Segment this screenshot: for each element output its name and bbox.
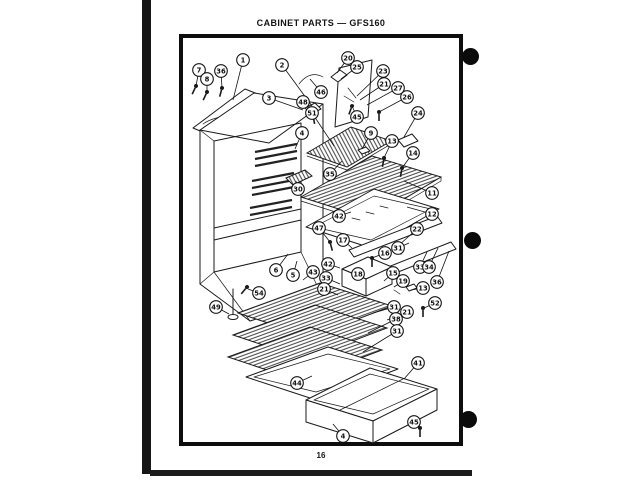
svg-text:35: 35 xyxy=(325,170,335,178)
callout-33: 33 xyxy=(320,272,333,285)
svg-text:54: 54 xyxy=(254,289,264,297)
svg-text:21: 21 xyxy=(379,80,389,88)
svg-text:4: 4 xyxy=(341,432,346,440)
svg-text:18: 18 xyxy=(353,270,363,278)
svg-text:8: 8 xyxy=(205,75,210,83)
svg-text:5: 5 xyxy=(291,271,296,279)
callout-26: 26 xyxy=(401,91,414,104)
callout-48: 48 xyxy=(297,96,310,109)
callout-4: 4 xyxy=(337,430,350,443)
exploded-parts-diagram: 7836123484651420252321272624459131435301… xyxy=(0,0,640,480)
svg-text:48: 48 xyxy=(298,98,308,106)
callout-38: 38 xyxy=(390,313,403,326)
svg-text:51: 51 xyxy=(307,109,317,117)
mounting-bracket-box xyxy=(342,257,392,296)
callout-54: 54 xyxy=(253,287,266,300)
svg-text:43: 43 xyxy=(308,268,318,276)
callout-17: 17 xyxy=(337,234,350,247)
callout-21: 21 xyxy=(378,78,391,91)
punch-hole-icon xyxy=(464,232,481,249)
callout-8: 8 xyxy=(201,73,214,86)
callout-36: 36 xyxy=(431,276,444,289)
callout-31: 31 xyxy=(391,325,404,338)
callout-49: 49 xyxy=(210,301,223,314)
callout-21: 21 xyxy=(401,306,414,319)
svg-text:38: 38 xyxy=(391,315,401,323)
svg-text:23: 23 xyxy=(378,67,388,75)
callout-22: 22 xyxy=(411,223,424,236)
svg-text:47: 47 xyxy=(314,224,324,232)
callout-11: 11 xyxy=(426,187,439,200)
svg-text:16: 16 xyxy=(380,249,390,257)
svg-text:15: 15 xyxy=(388,269,398,277)
svg-text:1: 1 xyxy=(241,56,246,64)
svg-text:41: 41 xyxy=(413,359,423,367)
svg-text:30: 30 xyxy=(293,185,303,193)
svg-text:9: 9 xyxy=(369,129,374,137)
divider-plate xyxy=(398,134,418,147)
callout-47: 47 xyxy=(313,222,326,235)
callout-45: 45 xyxy=(351,111,364,124)
svg-text:33: 33 xyxy=(321,274,331,282)
svg-text:34: 34 xyxy=(424,263,434,271)
callout-42: 42 xyxy=(333,210,346,223)
svg-text:26: 26 xyxy=(402,93,412,101)
svg-text:49: 49 xyxy=(211,303,221,311)
svg-text:31: 31 xyxy=(392,327,402,335)
svg-text:42: 42 xyxy=(334,212,344,220)
svg-text:44: 44 xyxy=(292,379,302,387)
svg-text:27: 27 xyxy=(393,84,403,92)
page-number: 16 xyxy=(179,451,463,460)
svg-text:13: 13 xyxy=(418,284,428,292)
svg-text:36: 36 xyxy=(216,67,226,75)
svg-text:24: 24 xyxy=(413,109,423,117)
svg-text:3: 3 xyxy=(267,94,272,102)
callout-44: 44 xyxy=(291,377,304,390)
callout-13: 13 xyxy=(417,282,430,295)
svg-text:36: 36 xyxy=(432,278,442,286)
callout-2: 2 xyxy=(276,59,289,72)
svg-text:22: 22 xyxy=(412,225,422,233)
punch-hole-icon xyxy=(462,48,479,65)
svg-text:11: 11 xyxy=(427,189,437,197)
callout-23: 23 xyxy=(377,65,390,78)
svg-text:31: 31 xyxy=(393,244,403,252)
callout-4: 4 xyxy=(296,127,309,140)
callout-36: 36 xyxy=(215,65,228,78)
callout-46: 46 xyxy=(315,86,328,99)
tube-part xyxy=(299,75,323,84)
svg-text:46: 46 xyxy=(316,88,326,96)
callout-3: 3 xyxy=(263,92,276,105)
callout-31: 31 xyxy=(388,301,401,314)
callout-30: 30 xyxy=(292,183,305,196)
svg-text:6: 6 xyxy=(274,266,279,274)
callout-24: 24 xyxy=(412,107,425,120)
callout-34: 34 xyxy=(423,261,436,274)
callout-6: 6 xyxy=(270,264,283,277)
callout-42: 42 xyxy=(322,258,335,271)
svg-text:21: 21 xyxy=(402,308,412,316)
svg-text:20: 20 xyxy=(343,54,353,62)
callout-14: 14 xyxy=(407,147,420,160)
svg-text:13: 13 xyxy=(387,137,397,145)
callout-12: 12 xyxy=(426,208,439,221)
callout-43: 43 xyxy=(307,266,320,279)
scanned-manual-page: { "page": { "title": "CABINET PARTS — GF… xyxy=(0,0,640,480)
callout-16: 16 xyxy=(379,247,392,260)
svg-text:17: 17 xyxy=(338,236,348,244)
svg-text:19: 19 xyxy=(398,277,408,285)
callout-41: 41 xyxy=(412,357,425,370)
callout-21: 21 xyxy=(318,283,331,296)
callout-31: 31 xyxy=(392,242,405,255)
svg-text:42: 42 xyxy=(323,260,333,268)
punch-hole-icon xyxy=(460,411,477,428)
callout-9: 9 xyxy=(365,127,378,140)
callout-1: 1 xyxy=(237,54,250,67)
svg-text:2: 2 xyxy=(280,61,285,69)
svg-text:45: 45 xyxy=(409,418,419,426)
svg-text:31: 31 xyxy=(389,303,399,311)
callout-18: 18 xyxy=(352,268,365,281)
svg-text:21: 21 xyxy=(319,285,329,293)
callout-25: 25 xyxy=(351,61,364,74)
svg-text:12: 12 xyxy=(427,210,437,218)
svg-text:25: 25 xyxy=(352,63,362,71)
callout-19: 19 xyxy=(397,275,410,288)
callout-5: 5 xyxy=(287,269,300,282)
callout-45: 45 xyxy=(408,416,421,429)
svg-text:4: 4 xyxy=(300,129,305,137)
callout-13: 13 xyxy=(386,135,399,148)
callout-52: 52 xyxy=(429,297,442,310)
svg-text:7: 7 xyxy=(197,66,202,74)
callout-35: 35 xyxy=(324,168,337,181)
svg-text:14: 14 xyxy=(408,149,418,157)
svg-text:45: 45 xyxy=(352,113,362,121)
callout-51: 51 xyxy=(306,107,319,120)
svg-text:52: 52 xyxy=(430,299,440,307)
